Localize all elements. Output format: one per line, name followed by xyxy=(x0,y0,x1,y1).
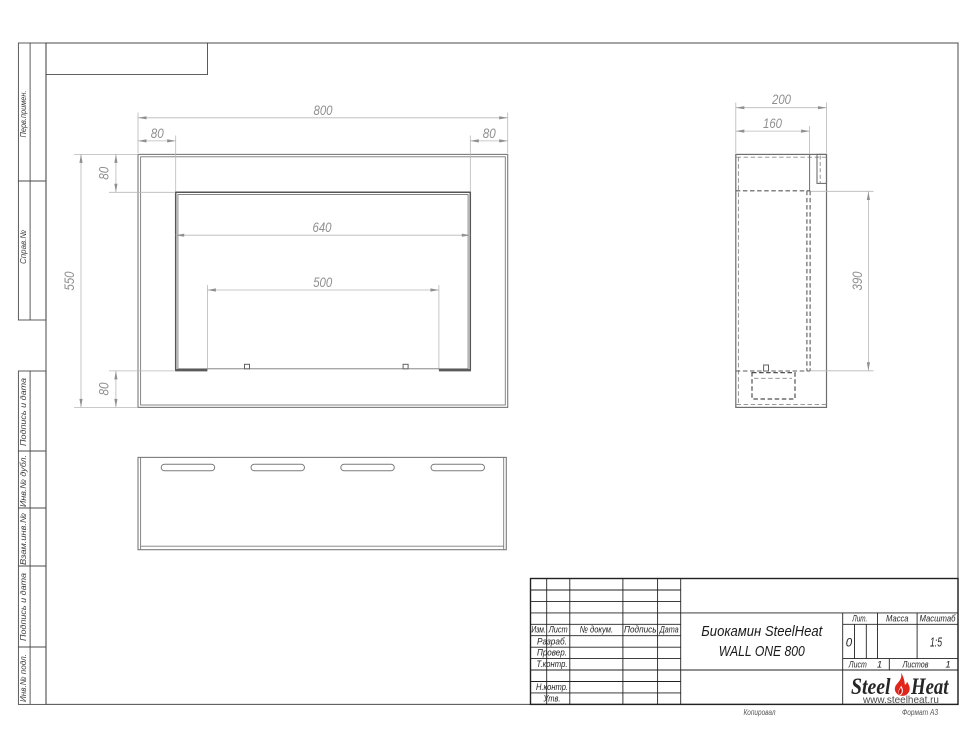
svg-text:Т.контр.: Т.контр. xyxy=(537,659,568,670)
svg-text:Н.контр.: Н.контр. xyxy=(536,682,568,693)
svg-text:Провер.: Провер. xyxy=(537,648,567,659)
svg-text:Инв.№ дубл.: Инв.№ дубл. xyxy=(18,455,28,507)
svg-text:800: 800 xyxy=(314,102,333,118)
svg-text:Перв.примен.: Перв.примен. xyxy=(18,91,28,138)
svg-text:Лит.: Лит. xyxy=(852,614,868,625)
svg-text:1: 1 xyxy=(877,659,882,670)
svg-text:80: 80 xyxy=(96,382,112,395)
svg-text:Масштаб: Масштаб xyxy=(920,614,957,625)
svg-text:Копировал: Копировал xyxy=(744,708,776,717)
svg-text:Инв.№ подл.: Инв.№ подл. xyxy=(18,654,28,702)
svg-text:WALL ONE 800: WALL ONE 800 xyxy=(719,644,805,660)
svg-text:Взам.инв.№: Взам.инв.№ xyxy=(18,513,28,565)
svg-text:Формат А3: Формат А3 xyxy=(902,708,938,717)
svg-text:www.steelheat.ru: www.steelheat.ru xyxy=(862,694,939,706)
svg-text:80: 80 xyxy=(96,167,112,180)
svg-text:500: 500 xyxy=(313,274,332,290)
svg-text:550: 550 xyxy=(61,271,77,290)
svg-text:80: 80 xyxy=(483,125,496,141)
svg-text:1:5: 1:5 xyxy=(930,636,942,650)
svg-text:Изм.: Изм. xyxy=(531,625,546,636)
svg-text:Масса: Масса xyxy=(886,614,909,625)
svg-text:200: 200 xyxy=(771,91,791,107)
svg-text:640: 640 xyxy=(313,219,332,235)
svg-text:№ докум.: № докум. xyxy=(580,625,614,636)
svg-text:Разраб.: Разраб. xyxy=(537,636,567,647)
svg-text:Подпись и дата: Подпись и дата xyxy=(18,573,28,641)
svg-text:Лист: Лист xyxy=(548,625,568,636)
svg-text:160: 160 xyxy=(763,115,782,131)
svg-text:Справ.№: Справ.№ xyxy=(18,230,28,264)
svg-text:Подпись и дата: Подпись и дата xyxy=(18,378,28,446)
svg-text:Утв.: Утв. xyxy=(543,693,561,704)
svg-text:0: 0 xyxy=(846,638,853,650)
svg-text:Листов: Листов xyxy=(902,659,929,670)
svg-text:390: 390 xyxy=(849,271,865,290)
svg-text:Подпись: Подпись xyxy=(624,625,657,636)
svg-text:Лист: Лист xyxy=(848,659,867,670)
svg-text:80: 80 xyxy=(151,125,164,141)
svg-text:Дата: Дата xyxy=(659,625,679,636)
svg-text:1: 1 xyxy=(945,659,950,670)
svg-text:Биокамин SteelHeat: Биокамин SteelHeat xyxy=(701,624,823,640)
